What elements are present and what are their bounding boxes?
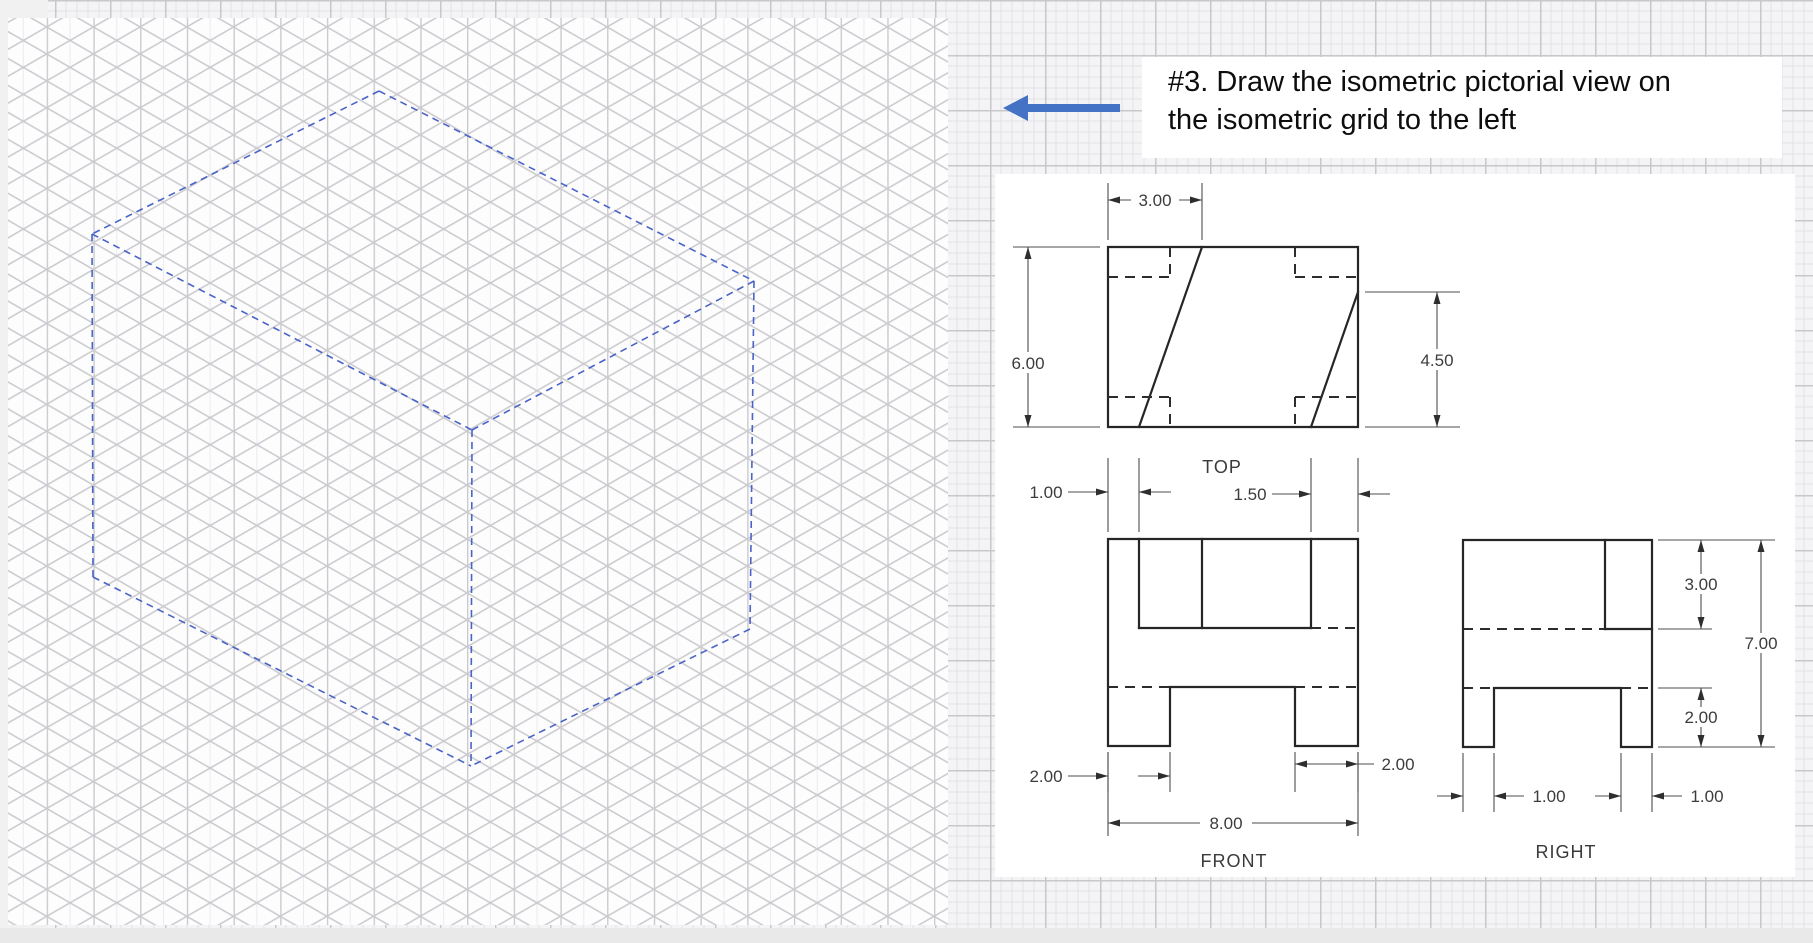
top-dim-right-depth-value: 4.50 bbox=[1420, 351, 1453, 370]
front-dim-total-width-value: 8.00 bbox=[1209, 814, 1242, 833]
front-dim-top-right-value: 1.50 bbox=[1233, 485, 1266, 504]
isometric-grid-sheet bbox=[8, 18, 948, 925]
front-dim-bottom-right-value: 2.00 bbox=[1381, 755, 1414, 774]
right-view-label: RIGHT bbox=[1536, 842, 1597, 862]
right-dim-leg-back-value: 1.00 bbox=[1690, 787, 1723, 806]
front-view-label: FRONT bbox=[1201, 851, 1268, 871]
front-dim-top-left-value: 1.00 bbox=[1029, 483, 1062, 502]
top-dim-left-depth-value: 6.00 bbox=[1011, 354, 1044, 373]
front-dim-bottom-left-value: 2.00 bbox=[1029, 767, 1062, 786]
instruction-line-1: #3. Draw the isometric pictorial view on bbox=[1168, 63, 1768, 101]
top-dim-width-value: 3.00 bbox=[1138, 191, 1171, 210]
top-view-label: TOP bbox=[1202, 457, 1242, 477]
worksheet-drawing: 3.00 6.00 4.50 TOP bbox=[0, 0, 1813, 943]
right-dim-lower-value: 2.00 bbox=[1684, 708, 1717, 727]
right-dim-total-value: 7.00 bbox=[1744, 634, 1777, 653]
right-dim-upper-value: 3.00 bbox=[1684, 575, 1717, 594]
right-dim-leg-front-value: 1.00 bbox=[1532, 787, 1565, 806]
instruction-text: #3. Draw the isometric pictorial view on… bbox=[1168, 63, 1768, 139]
page-bottom-margin bbox=[0, 928, 1813, 943]
worksheet-page: 3.00 6.00 4.50 TOP bbox=[0, 0, 1813, 943]
instruction-line-2: the isometric grid to the left bbox=[1168, 101, 1768, 139]
